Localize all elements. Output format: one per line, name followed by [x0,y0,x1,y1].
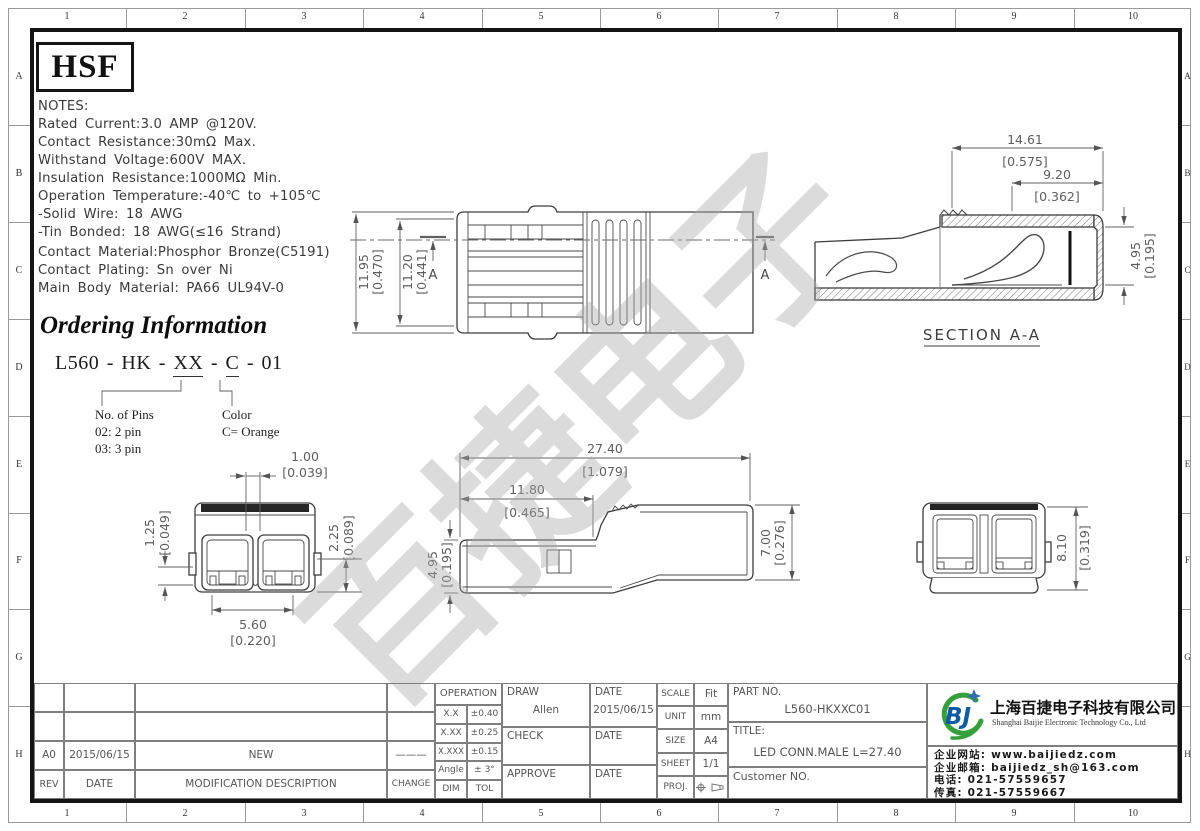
dim-text: 4.95 [1128,242,1143,270]
date-label: DATE [595,686,622,698]
note-line: NOTES: [38,98,358,116]
size-value: A4 [694,729,728,753]
grid-tick [1182,416,1191,417]
dim-text: 27.40 [587,441,623,456]
grid-tick [1074,803,1075,823]
logo-monogram: BJ [945,704,972,730]
check-label: CHECK [507,730,543,742]
draw-date: 2015/06/15 [591,704,656,716]
grid-col-label: 9 [955,805,1073,823]
grid-tick [8,125,30,126]
sheet-value: 1/1 [694,753,728,776]
grid-tick [837,803,838,823]
grid-tick [126,8,127,28]
draw-cell: DRAW Allen [502,683,590,727]
hsf-logo: HSF [36,42,134,92]
tol-label: Angle [435,761,467,780]
drawing-front-view: 1.00 [0.039] 1.25 [0.049] 2.25 [0.089] 5… [140,445,395,660]
grid-row-label: E [8,416,30,513]
projection-label: PROJ. [657,776,694,799]
code-seg-color: C [226,352,240,377]
dim-text: 11.20 [400,254,415,290]
color-label: Color [222,406,252,423]
dim-text: 1.00 [291,449,319,464]
rev-header: REV [34,770,64,799]
dim-text: [0.195] [1142,233,1157,279]
phone-value: 021-57559657 [968,774,1067,786]
approve-label: APPROVE [507,768,556,780]
section-title: SECTION A-A [923,326,1041,344]
tol-value: ±0.25 [467,724,502,743]
title-label: TITLE: [733,725,765,737]
projection-symbol-cell [694,776,728,799]
tol-value: ± 3° [467,761,502,780]
grid-tick [8,706,30,707]
note-line: Operation Temperature:-40℃ to +105℃ [38,188,358,206]
grid-tick [718,803,719,823]
draw-label: DRAW [507,686,539,698]
pins-label: No. of Pins [95,406,154,423]
dim-text: 8.10 [1054,534,1069,562]
grid-col-label: 1 [8,8,126,26]
grid-col-label: 6 [600,8,718,26]
grid-tick [1182,319,1191,320]
rev-empty-cell [387,712,435,741]
grid-tick [8,319,30,320]
phone-label: 电话: [934,774,963,786]
grid-col-label: 5 [482,805,600,823]
drawing-rear-view: 8.10 [0.319] [890,470,1110,610]
fax-value: 021-57559667 [968,787,1067,799]
customer-no-cell: Customer NO. [728,767,927,799]
email-value: baijiedz_sh@163.com [991,762,1140,774]
code-seg: - [203,352,225,374]
ordering-part-code: L560 - HK - XX - C - 01 [55,352,283,375]
dim-text: 1.25 [142,519,157,547]
grid-tick [600,8,601,28]
company-logo-icon: BJ [932,688,986,742]
sheet-label: SHEET [657,753,694,776]
grid-tick [482,8,483,28]
grid-tick [1182,513,1191,514]
rev-desc-value: NEW [135,741,387,770]
check-cell: CHECK [502,727,590,765]
ordering-leader-lines [60,378,320,408]
rev-desc-header: MODIFICATION DESCRIPTION [135,770,387,799]
color-option: C= Orange [222,423,280,440]
section-mark-label: A [429,268,438,283]
drawing-top-view: 11.95 [0.470] 11.20 [0.441] A A [350,195,775,350]
company-phone: 电话: 021-57559657 [934,774,1171,787]
dim-text: 2.25 [326,524,341,552]
tol-label: X.XX [435,724,467,743]
tol-label: X.X [435,705,467,724]
grid-tick [8,609,30,610]
grid-col-label: 9 [955,8,1073,26]
grid-tick [8,513,30,514]
grid-tick [8,222,30,223]
grid-tick [245,8,246,28]
grid-tick [363,8,364,28]
rev-value: A0 [34,741,64,770]
grid-tick [718,8,719,28]
drawing-section-aa: 14.61 [0.575] 9.20 [0.362] 4.95 [0.195] … [812,135,1167,355]
draw-date-cell: DATE 2015/06/15 [590,683,657,727]
title-value: LED CONN.MALE L=27.40 [729,745,926,759]
grid-col-label: 7 [718,805,836,823]
rev-empty-cell [34,712,64,741]
grid-row-label: C [8,222,30,319]
note-line: Insulation Resistance:1000MΩ Min. [38,170,358,188]
grid-tick [955,803,956,823]
dim-text: [0.465] [504,505,550,520]
ordering-title: Ordering Information [40,312,267,340]
dim-text: 5.60 [239,617,267,632]
dim-text: [0.195] [439,542,454,588]
company-website: 企业网站: www.baijiedz.com [934,749,1171,762]
grid-row-label: G [1183,609,1192,706]
grid-col-label: 3 [245,8,363,26]
scale-label: SCALE [657,683,694,706]
rev-change-value: ——— [387,741,435,770]
company-name-cn: 上海百捷电子科技有限公司 [990,696,1176,718]
dim-text: [0.470] [370,249,385,295]
code-seg: L560 - HK - [55,352,173,374]
grid-col-label: 3 [245,805,363,823]
rev-empty-cell [64,683,135,712]
dim-text: [0.089] [341,515,356,561]
website-value: www.baijiedz.com [991,749,1117,761]
rev-date-value: 2015/06/15 [64,741,135,770]
notes-block: NOTES: Rated Current:3.0 AMP @120V. Cont… [38,98,358,242]
grid-row-label: B [1183,125,1192,222]
grid-col-label: 6 [600,805,718,823]
grid-col-label: 8 [837,805,955,823]
section-mark-label: A [761,268,770,283]
note-line: Rated Current:3.0 AMP @120V. [38,116,358,134]
grid-row-label: D [1183,319,1192,416]
scale-value: Fit [694,683,728,706]
dim-text: [0.319] [1077,525,1092,571]
check-date-cell: DATE [590,727,657,765]
part-no-label: PART NO. [733,686,781,698]
grid-row-label: C [1183,222,1192,319]
pins-option: 02: 2 pin [95,423,141,440]
approve-cell: APPROVE [502,765,590,799]
dim-text: 11.80 [509,482,545,497]
dim-text: [1.079] [582,464,628,479]
tol-value: ±0.15 [467,743,502,761]
projection-symbol-icon [695,777,727,798]
part-no-value: L560-HKXXC01 [729,702,926,716]
dim-text: 7.00 [758,529,773,557]
website-label: 企业网站: [934,749,986,761]
dim-text: 4.95 [425,551,440,579]
grid-row-label: G [8,609,30,706]
grid-row-label: A [8,28,30,125]
dim-text: [0.220] [230,633,276,648]
dim-text: [0.362] [1034,189,1080,204]
rev-empty-cell [135,683,387,712]
approve-date-cell: DATE [590,765,657,799]
title-block: A0 2015/06/15 NEW ——— REV DATE MODIFICAT… [34,683,1178,799]
dim-text: 11.95 [356,254,371,290]
note-line: Main Body Material: PA66 UL94V-0 [38,280,358,298]
grid-col-label: 8 [837,8,955,26]
title-cell: TITLE: LED CONN.MALE L=27.40 [728,722,927,767]
note-line: Withstand Voltage:600V MAX. [38,152,358,170]
dim-text: [0.276] [772,520,787,566]
grid-row-label: H [1183,706,1192,803]
grid-tick [600,803,601,823]
dim-text: [0.039] [282,465,328,480]
note-line: Contact Resistance:30mΩ Max. [38,134,358,152]
rev-empty-cell [387,683,435,712]
grid-row-label: H [8,706,30,803]
rev-date-header: DATE [64,770,135,799]
grid-col-label: 2 [126,8,244,26]
code-seg-pins: XX [173,352,203,377]
company-header-cell: BJ 上海百捷电子科技有限公司 Shanghai Baijie Electron… [927,683,1178,746]
company-contact-cell: 企业网站: www.baijiedz.com 企业邮箱: baijiedz_sh… [927,746,1178,799]
dim-text: 14.61 [1007,132,1043,147]
note-line: Contact Material:Phosphor Bronze(C5191) [38,244,358,262]
grid-tick [126,803,127,823]
grid-col-label: 10 [1074,805,1192,823]
date-label: DATE [595,768,622,780]
size-label: SIZE [657,729,694,753]
grid-tick [8,416,30,417]
note-line: -Tin Bonded: 18 AWG(≤16 Strand) [38,224,358,242]
grid-row-label: B [8,125,30,222]
grid-col-label: 7 [718,8,836,26]
grid-tick [955,8,956,28]
date-label: DATE [595,730,622,742]
grid-row-label: F [8,512,30,609]
page: 1 2 3 4 5 6 7 8 9 10 1 2 3 4 5 6 7 8 9 1… [0,0,1200,831]
dim-text: [0.441] [414,249,429,295]
dim-text: 9.20 [1043,167,1071,182]
grid-tick [482,803,483,823]
grid-tick [1182,706,1191,707]
tolerance-header: OPERATION [435,683,502,705]
drawing-side-view: 27.40 [1.079] 11.80 [0.465] 4.95 [0.195]… [430,435,810,600]
rev-empty-cell [34,683,64,712]
grid-col-label: 2 [126,805,244,823]
grid-tick [363,803,364,823]
note-line: -Solid Wire: 18 AWG [38,206,358,224]
unit-value: mm [694,706,728,729]
tol-label: X.XXX [435,743,467,761]
rev-change-header: CHANGE [387,770,435,799]
grid-col-label: 4 [363,805,481,823]
email-label: 企业邮箱: [934,762,986,774]
rev-empty-cell [135,712,387,741]
grid-row-label: A [1183,28,1192,125]
tol-value: ±0.40 [467,705,502,724]
dim-text: [0.575] [1002,154,1048,169]
unit-label: UNIT [657,706,694,729]
grid-tick [1182,609,1191,610]
rev-empty-cell [64,712,135,741]
grid-col-label: 10 [1074,8,1192,26]
tol-label: DIM [435,780,467,799]
code-seg: - 01 [239,352,282,374]
part-no-cell: PART NO. L560-HKXXC01 [728,683,927,722]
grid-tick [1182,222,1191,223]
grid-tick [245,803,246,823]
grid-tick [1074,8,1075,28]
company-fax: 传真: 021-57559667 [934,787,1171,800]
grid-col-label: 1 [8,805,126,823]
grid-row-label: E [1183,416,1192,513]
fax-label: 传真: [934,787,963,799]
grid-row-label: F [1183,512,1192,609]
draw-name: Allen [503,704,589,716]
materials-block: Contact Material:Phosphor Bronze(C5191) … [38,244,358,298]
note-line: Contact Plating: Sn over Ni [38,262,358,280]
company-email: 企业邮箱: baijiedz_sh@163.com [934,762,1171,775]
dim-text: [0.049] [157,510,172,556]
grid-tick [837,8,838,28]
customer-no-label: Customer NO. [733,770,810,783]
pins-option: 03: 3 pin [95,440,141,457]
company-name-en: Shanghai Baijie Electronic Technology Co… [992,718,1146,727]
grid-tick [1182,125,1191,126]
grid-col-label: 4 [363,8,481,26]
grid-col-label: 5 [482,8,600,26]
grid-row-label: D [8,319,30,416]
tol-value: TOL [467,780,502,799]
